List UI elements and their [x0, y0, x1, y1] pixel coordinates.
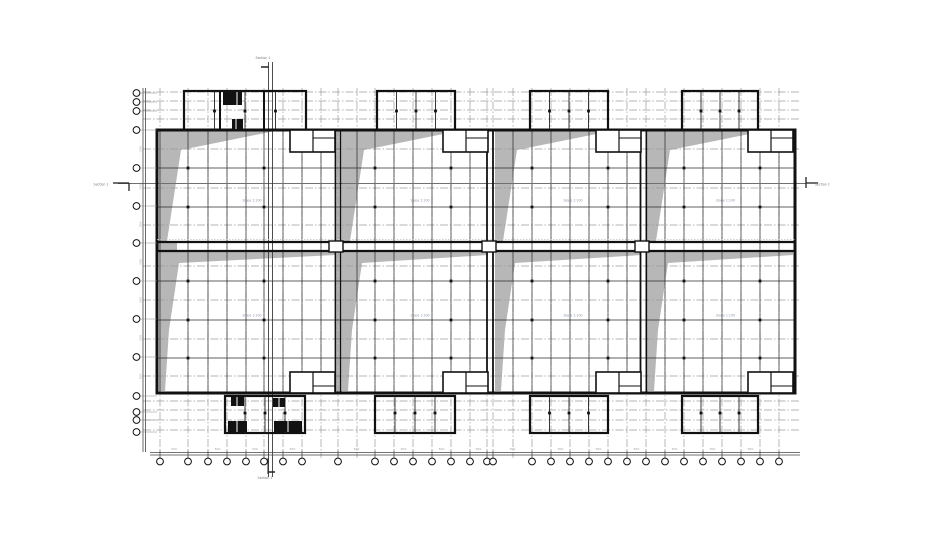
grid-bubble	[299, 458, 306, 465]
grid-bubble	[133, 240, 140, 247]
dimension-value: 500	[596, 447, 602, 451]
grid-bubble	[133, 393, 140, 400]
grid-bubble	[133, 429, 140, 436]
column-marker	[759, 319, 762, 322]
column-marker	[607, 280, 610, 283]
column-marker	[531, 280, 534, 283]
column-marker	[263, 280, 266, 283]
grid-bubble	[133, 99, 140, 106]
ramp-wedge-lower	[648, 252, 793, 391]
dimension-value: 500	[139, 184, 143, 190]
dimension-value: 500	[558, 447, 564, 451]
grid-bubble	[335, 458, 342, 465]
column-marker	[531, 319, 534, 322]
stair-core-block	[223, 92, 242, 105]
dimension-value: 500	[139, 297, 143, 303]
slope-label: Slope 1:100	[410, 314, 429, 318]
joint-detail-box	[329, 241, 343, 252]
ramp-wedge-upper	[495, 131, 611, 241]
column-marker	[374, 280, 377, 283]
column-marker	[683, 319, 686, 322]
column-marker	[263, 206, 266, 209]
grid-bubble	[372, 458, 379, 465]
column-marker	[450, 206, 453, 209]
grid-bubble	[243, 458, 250, 465]
column-marker	[374, 319, 377, 322]
dimension-value: 500	[634, 447, 640, 451]
grid-bubble	[133, 90, 140, 97]
roof-protrusion-bottom-node	[548, 412, 551, 415]
dimension-value: 500	[139, 374, 143, 380]
grid-bubble	[662, 458, 669, 465]
column-marker	[759, 357, 762, 360]
dimension-value: 500	[252, 447, 258, 451]
grid-bubble	[681, 458, 688, 465]
dimension-value: 500	[748, 447, 754, 451]
column-marker	[607, 357, 610, 360]
column-marker	[683, 206, 686, 209]
grid-bubble	[224, 458, 231, 465]
section-marker-label: Section 1	[94, 183, 109, 187]
grid-bubble	[719, 458, 726, 465]
column-marker	[263, 319, 266, 322]
slope-label: Slope 1:100	[716, 314, 735, 318]
column-marker	[450, 319, 453, 322]
dimension-value: 500	[439, 447, 445, 451]
roof-protrusion-bottom-node	[434, 412, 437, 415]
column-marker	[683, 280, 686, 283]
grid-bubble	[133, 316, 140, 323]
grid-bubble	[280, 458, 287, 465]
slope-label: Slope 1:100	[716, 199, 735, 203]
column-marker	[531, 357, 534, 360]
section-marker-label: Section 1	[258, 476, 273, 480]
grid-bubble	[261, 458, 268, 465]
dimension-value: 500	[139, 335, 143, 341]
roof-protrusion-top-node	[719, 110, 722, 113]
dimension-value: 500	[139, 146, 143, 152]
column-marker	[683, 167, 686, 170]
grid-bubble	[448, 458, 455, 465]
column-marker	[187, 319, 190, 322]
column-marker	[374, 167, 377, 170]
grid-bubble	[586, 458, 593, 465]
column-marker	[683, 357, 686, 360]
dimension-value: 500	[710, 447, 716, 451]
dimension-value: 500	[139, 259, 143, 265]
roof-protrusion-top-node	[434, 110, 437, 113]
cad-sheet: 5005005005005005005005005005005005005005…	[0, 0, 949, 534]
roof-protrusion-bottom-node	[414, 412, 417, 415]
grid-bubble	[624, 458, 631, 465]
dimension-value: 500	[476, 447, 482, 451]
dimension-value: 500	[215, 447, 221, 451]
grid-bubble	[133, 417, 140, 424]
grid-bubble	[738, 458, 745, 465]
roof-protrusion-bottom-node	[587, 412, 590, 415]
slope-label: Slope 1:100	[410, 199, 429, 203]
column-marker	[607, 167, 610, 170]
column-marker	[450, 357, 453, 360]
roof-protrusion-top-node	[738, 110, 741, 113]
column-marker	[450, 167, 453, 170]
column-marker	[263, 357, 266, 360]
grid-bubble	[548, 458, 555, 465]
grid-bubble	[133, 278, 140, 285]
grid-bubble	[429, 458, 436, 465]
grid-bubble	[567, 458, 574, 465]
slope-label: Slope 1:100	[242, 199, 261, 203]
roof-protrusion-bottom-node	[244, 412, 247, 415]
roof-protrusion-top-node	[548, 110, 551, 113]
ramp-wedge-lower	[159, 252, 335, 391]
stair-core-block	[232, 119, 243, 129]
slope-label: Slope 1:100	[242, 314, 261, 318]
column-marker	[187, 206, 190, 209]
slope-label: Slope 1:100	[563, 314, 582, 318]
roof-protrusion-top-node	[395, 110, 398, 113]
building-outline	[157, 130, 795, 393]
grid-bubble	[133, 165, 140, 172]
grid-bubble	[605, 458, 612, 465]
dimension-value: 500	[354, 447, 360, 451]
column-marker	[263, 167, 266, 170]
column-marker	[187, 280, 190, 283]
dimension-value: 500	[290, 447, 296, 451]
dimension-value: 500	[672, 447, 678, 451]
grid-bubble	[133, 409, 140, 416]
roof-protrusion-bottom-node	[568, 412, 571, 415]
ramp-wedge-upper	[648, 131, 764, 241]
roof-protrusion-bottom-node	[264, 412, 267, 415]
ramp-wedge-upper	[342, 131, 458, 241]
grid-bubble	[700, 458, 707, 465]
grid-bubble	[410, 458, 417, 465]
column-marker	[187, 167, 190, 170]
roof-protrusion-bottom-node	[284, 412, 287, 415]
dimension-value: 500	[139, 222, 143, 228]
roof-protrusion-top-node	[568, 110, 571, 113]
column-marker	[531, 167, 534, 170]
ramp-wedge-lower	[342, 252, 488, 391]
grid-bubble	[391, 458, 398, 465]
roof-protrusion-top-node	[415, 110, 418, 113]
column-marker	[759, 280, 762, 283]
roof-protrusion-top-node	[700, 110, 703, 113]
grid-bubble	[643, 458, 650, 465]
roof-protrusion-top-node	[274, 110, 277, 113]
roof-protrusion-top-node	[244, 110, 247, 113]
dimension-value: 500	[401, 447, 407, 451]
grid-bubble	[133, 127, 140, 134]
section-marker-label: Section 1	[815, 183, 830, 187]
grid-bubble	[467, 458, 474, 465]
roof-protrusion-top-node	[213, 110, 216, 113]
column-marker	[450, 280, 453, 283]
column-marker	[531, 206, 534, 209]
grid-bubble	[757, 458, 764, 465]
joint-detail-box	[482, 241, 496, 252]
column-marker	[607, 206, 610, 209]
column-marker	[187, 357, 190, 360]
floor-plan-drawing: 5005005005005005005005005005005005005005…	[0, 0, 949, 534]
roof-protrusion-bottom-node	[700, 412, 703, 415]
grid-bubble	[529, 458, 536, 465]
ramp-wedge-lower	[495, 252, 641, 391]
slope-label: Slope 1:100	[563, 199, 582, 203]
roof-protrusion-bottom-node	[394, 412, 397, 415]
roof-protrusion-bottom-node	[719, 412, 722, 415]
dimension-value: 500	[171, 447, 177, 451]
grid-bubble	[490, 458, 497, 465]
grid-bubble	[133, 354, 140, 361]
section-marker-label: Section 1	[256, 56, 271, 60]
grid-bubble	[133, 203, 140, 210]
column-marker	[374, 357, 377, 360]
grid-bubble	[133, 108, 140, 115]
ramp-wedge-upper	[159, 131, 275, 241]
roof-protrusion-top-node	[587, 110, 590, 113]
column-marker	[607, 319, 610, 322]
grid-bubble	[157, 458, 164, 465]
grid-bubble	[776, 458, 783, 465]
column-marker	[759, 206, 762, 209]
roof-protrusion-bottom-node	[738, 412, 741, 415]
joint-detail-box	[635, 241, 649, 252]
grid-bubble	[185, 458, 192, 465]
dimension-value: 500	[510, 447, 516, 451]
column-marker	[759, 167, 762, 170]
grid-bubble	[205, 458, 212, 465]
column-marker	[374, 206, 377, 209]
